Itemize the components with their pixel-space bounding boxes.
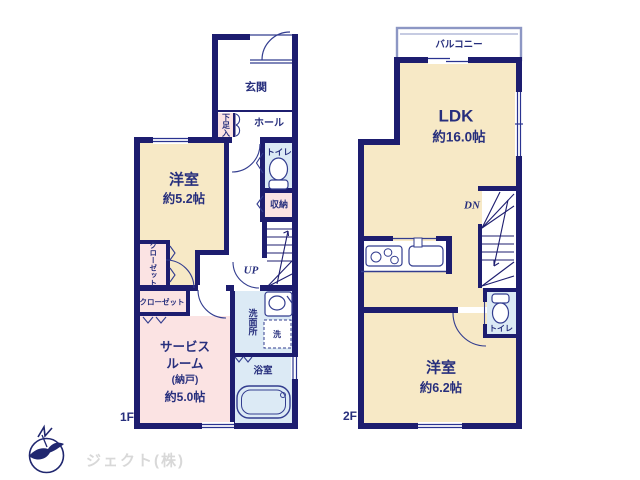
stairs-1f [267,229,292,287]
entrance-porch [250,32,292,63]
floor1-room-fills [140,113,292,423]
company-logo [29,427,64,473]
floor1-plan [134,32,299,430]
room-size-ldk: 約16.0帖 [432,130,485,144]
bedroom1-door-arc [232,144,260,172]
room-label-closet-v: クローゼット [149,242,157,287]
floorplan-page: 玄関 下足入 ホール トイレ 洋室 約5.2帖 収納 クローゼット クローゼット… [0,0,640,480]
room-size-service: 約5.0帖 [165,391,206,403]
room-label-genkan: 玄関 [245,83,267,94]
room-label-balcony: バルコニー [435,40,482,50]
service-room-door-arc [198,290,226,318]
room-label-bedroom2: 洋室 [426,361,456,376]
company-name: ジェクト(株) [86,454,185,469]
stove-fixture [366,246,402,266]
floor-label-2f: 2F [343,410,357,422]
room-label-bath: 浴室 [253,366,272,376]
room-label-service-3: (納戸) [172,376,199,386]
stairs-label-up: UP [244,266,259,277]
room-size-bedroom2: 約6.2帖 [420,382,462,395]
toilet-fixture-1f [269,158,288,189]
room-label-service-1: サービス [160,341,210,354]
room-label-washroom: 洗面所 [248,309,257,336]
floor-label-1f: 1F [120,411,134,423]
logo-n-mark [38,427,52,437]
shoe-cabinet-door [236,114,240,136]
floorplan-drawing [0,0,640,480]
room-label-toilet-2f: トイレ [489,325,513,333]
room-size-bedroom1: 約5.2帖 [163,193,205,206]
toilet-fixture-2f [492,294,509,323]
entrance-door-arc [262,32,290,60]
room-label-ldk: LDK [439,108,474,125]
room-label-closet-h: クローゼット [140,298,185,306]
stairs-label-dn: DN [464,201,480,212]
washbasin-fixture [265,292,292,316]
room-label-storage: 収納 [270,201,288,210]
room-label-bedroom1: 洋室 [169,173,199,188]
room-label-toilet-1f: トイレ [266,148,292,157]
label-washer: 洗 [273,331,281,339]
room-label-shoe: 下足入 [222,113,230,137]
room-label-service-2: ルーム [166,358,203,371]
room-label-hall: ホール [254,119,284,129]
